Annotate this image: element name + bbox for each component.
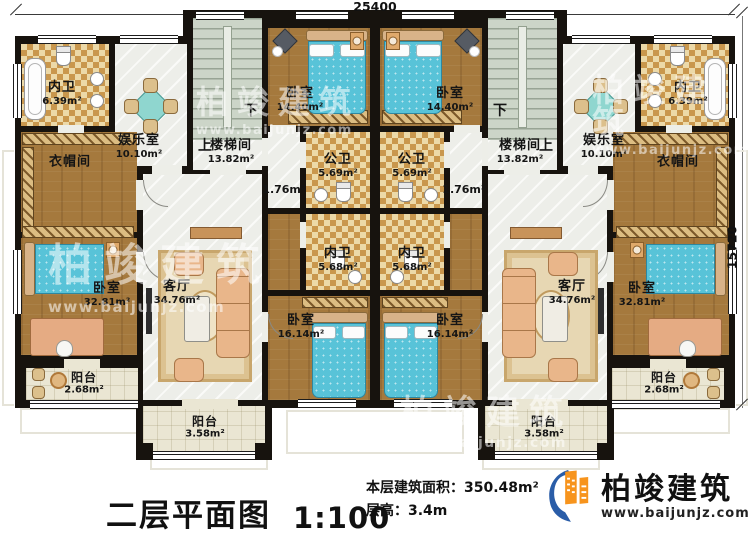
label-bedroom-mid-right: 卧室16.14m²: [427, 314, 473, 340]
sink: [314, 188, 328, 202]
stair-up-label: 上: [539, 135, 553, 155]
door-opening: [454, 125, 480, 133]
door-opening: [152, 165, 182, 175]
sink: [90, 72, 104, 86]
stair-rail: [518, 26, 527, 128]
nightstand: [106, 242, 120, 258]
label-ensuite-mid-right: 内卫5.68m²: [392, 247, 431, 273]
pillar: [597, 443, 614, 460]
door-opening: [270, 125, 296, 133]
label-recreation-left: 娱乐室10.10m²: [116, 134, 162, 160]
stair-down-label: 下: [244, 100, 258, 120]
sofa: [216, 268, 250, 358]
door-opening: [512, 399, 568, 409]
chair: [593, 119, 608, 134]
ground-outline: [286, 410, 464, 454]
label-public-bath-left: 公卫5.69m²: [318, 153, 357, 179]
label-passage-left: 1.76m²: [262, 184, 305, 196]
label-balcony-large-left: 阳台3.58m²: [185, 416, 224, 441]
toilet: [336, 182, 351, 202]
window: [120, 35, 178, 44]
armchair: [548, 252, 578, 276]
stair-rail: [223, 26, 232, 128]
door-opening: [568, 165, 598, 175]
pillar: [136, 443, 153, 460]
stair-up-label: 上: [198, 135, 212, 155]
door-opening: [482, 138, 488, 166]
label-ensuite-mid-left: 内卫5.68m²: [318, 247, 357, 273]
balcony-railing: [488, 451, 604, 460]
pillar: [478, 443, 495, 460]
door-opening: [58, 125, 84, 133]
wardrobe: [616, 133, 728, 145]
floor-info: 本层建筑面积：350.48m² 层高：3.4m: [366, 477, 539, 523]
floor-area-line: 本层建筑面积：350.48m²: [366, 477, 539, 500]
chair: [574, 99, 589, 114]
door-opening: [182, 399, 238, 409]
window: [506, 11, 554, 20]
door-opening: [210, 165, 246, 175]
sofa: [502, 268, 536, 358]
nightstand: [350, 32, 364, 50]
chair: [593, 78, 608, 93]
patio-chair: [707, 368, 720, 381]
label-public-bath-right: 公卫5.69m²: [392, 153, 431, 179]
sink: [648, 72, 662, 86]
patio-chair: [32, 368, 45, 381]
window: [298, 399, 356, 408]
toilet: [398, 182, 413, 202]
desk-chair: [56, 340, 73, 357]
label-bedroom-master-left: 卧室32.81m²: [84, 282, 130, 308]
room-nook-right: [450, 214, 482, 290]
window: [572, 35, 630, 44]
wardrobe: [616, 226, 728, 238]
desk-chair: [679, 340, 696, 357]
label-recreation-right: 娱乐室10.10m²: [581, 134, 627, 160]
room-passage-left: [268, 132, 300, 208]
window: [13, 250, 22, 314]
chair: [613, 99, 628, 114]
brand-building-icon: [545, 466, 593, 528]
label-balcony-small-left: 阳台2.68m²: [64, 372, 103, 397]
balcony-railing: [146, 451, 262, 460]
window: [13, 64, 22, 118]
sink: [90, 94, 104, 108]
nightstand: [630, 242, 644, 258]
door-opening: [136, 180, 143, 210]
balcony-railing: [30, 400, 138, 409]
label-balcony-small-right: 阳台2.68m²: [644, 372, 683, 397]
door-opening: [666, 125, 692, 133]
armchair: [548, 358, 578, 382]
door-opening: [64, 359, 100, 369]
door-opening: [300, 222, 306, 248]
sink: [648, 94, 662, 108]
label-bedroom-top-left: 卧室14.40m²: [277, 87, 323, 113]
floor-height-line: 层高：3.4m: [366, 500, 539, 523]
wardrobe: [22, 226, 134, 238]
dimension-width-label: 25400: [340, 0, 410, 14]
ground-outline: [20, 408, 138, 434]
door-opening: [262, 138, 268, 166]
wardrobe: [22, 147, 34, 231]
room-cloakroom-right: [613, 132, 729, 232]
door-opening: [482, 312, 488, 342]
ground-outline: [736, 150, 748, 406]
window: [196, 11, 244, 20]
title-block: 二层平面图 1:100: [106, 490, 396, 539]
label-cloakroom-right: 衣帽间: [657, 156, 699, 171]
window: [38, 35, 96, 44]
balcony-railing: [612, 400, 720, 409]
chair: [124, 99, 139, 114]
toilet: [56, 46, 71, 66]
stair-down-label: 下: [493, 100, 507, 120]
wardrobe: [302, 297, 368, 308]
label-living-right: 客厅34.76m²: [549, 280, 595, 306]
sideboard: [190, 227, 242, 239]
toilet: [670, 46, 685, 66]
label-bedroom-mid-left: 卧室16.14m²: [278, 314, 324, 340]
chair: [143, 78, 158, 93]
label-bedroom-top-right: 卧室14.40m²: [427, 87, 473, 113]
door-opening: [444, 222, 450, 248]
page-title: 二层平面图: [106, 490, 271, 535]
door-opening: [607, 252, 614, 282]
room-nook-left: [268, 214, 300, 290]
window: [654, 35, 712, 44]
door-opening: [650, 359, 686, 369]
sink: [424, 188, 438, 202]
tv: [598, 288, 604, 334]
brand-name: 柏竣建筑: [601, 473, 750, 506]
dimension-height-label: 15720: [725, 218, 740, 278]
floor-lamp: [272, 46, 283, 57]
door-opening: [136, 252, 143, 282]
label-ensuite-top-left: 内卫6.39m²: [42, 81, 81, 107]
brand-logo-block: 柏竣建筑 www.baijunjz.com: [545, 466, 750, 528]
wardrobe: [382, 297, 448, 308]
label-ensuite-top-right: 内卫6.39m²: [668, 81, 707, 107]
label-living-left: 客厅34.76m²: [154, 280, 200, 306]
label-stairwell-right: 楼梯间13.82m²: [497, 139, 543, 165]
label-cloakroom-left: 衣帽间: [49, 156, 91, 171]
door-opening: [444, 142, 450, 168]
patio-chair: [32, 386, 45, 399]
floorplan-canvas: 25400 15720: [0, 0, 750, 539]
label-balcony-large-right: 阳台3.58m²: [524, 416, 563, 441]
sideboard: [510, 227, 562, 239]
door-opening: [504, 165, 540, 175]
window: [728, 64, 737, 118]
room-passage-right: [450, 132, 482, 208]
label-passage-right: 1.76m²: [442, 184, 485, 196]
door-opening: [607, 180, 614, 210]
brand-url: www.baijunjz.com: [601, 506, 750, 521]
armchair: [174, 358, 204, 382]
tv: [146, 288, 152, 334]
armchair: [174, 252, 204, 276]
label-bedroom-master-right: 卧室32.81m²: [619, 282, 665, 308]
label-stairwell-left: 楼梯间13.82m²: [208, 139, 254, 165]
chair: [143, 119, 158, 134]
patio-chair: [707, 386, 720, 399]
window: [394, 399, 452, 408]
patio-table: [683, 372, 700, 389]
pillar: [255, 443, 272, 460]
floor-lamp: [469, 46, 480, 57]
ground-outline: [612, 408, 730, 434]
door-opening: [300, 142, 306, 168]
chair: [163, 99, 178, 114]
nightstand: [386, 32, 400, 50]
door-opening: [262, 312, 268, 342]
